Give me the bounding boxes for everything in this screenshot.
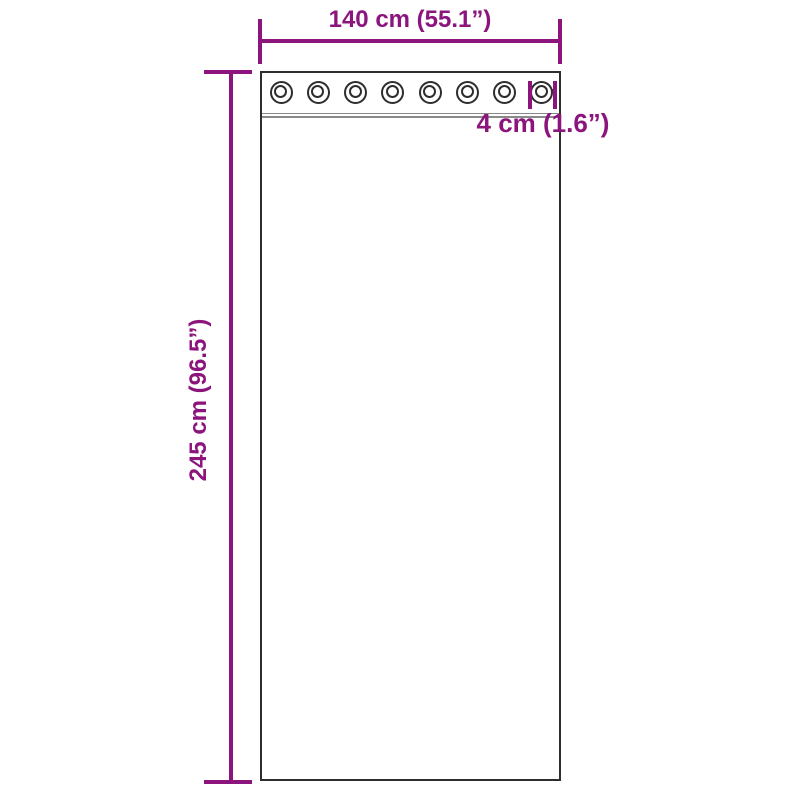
height-dimension-line bbox=[229, 72, 233, 782]
grommet bbox=[344, 81, 367, 104]
grommet-inner-ring bbox=[274, 85, 287, 98]
grommet-inner-ring bbox=[423, 85, 436, 98]
width-dimension-cap-left bbox=[258, 19, 262, 64]
grommet bbox=[530, 81, 553, 104]
grommet-inner-ring bbox=[386, 85, 399, 98]
grommet-inner-ring bbox=[311, 85, 324, 98]
grommet bbox=[270, 81, 293, 104]
grommet bbox=[493, 81, 516, 104]
width-dimension-cap-right bbox=[558, 19, 562, 64]
dimension-diagram: 140 cm (55.1”) 245 cm (96.5”) 4 cm (1.6”… bbox=[0, 0, 800, 800]
curtain-panel bbox=[260, 71, 561, 781]
grommet-dimension-tick-left bbox=[528, 81, 532, 109]
grommet bbox=[419, 81, 442, 104]
grommet-inner-ring bbox=[535, 85, 548, 98]
grommet-dimension-label: 4 cm (1.6”) bbox=[462, 108, 624, 139]
grommet-inner-ring bbox=[461, 85, 474, 98]
width-dimension-line bbox=[260, 39, 560, 43]
height-dimension-cap-bottom bbox=[204, 780, 252, 784]
grommet bbox=[307, 81, 330, 104]
height-dimension-cap-top bbox=[204, 70, 252, 74]
height-dimension-label: 245 cm (96.5”) bbox=[185, 250, 211, 550]
grommet-inner-ring bbox=[498, 85, 511, 98]
grommet bbox=[381, 81, 404, 104]
grommet bbox=[456, 81, 479, 104]
width-dimension-label: 140 cm (55.1”) bbox=[260, 6, 560, 35]
grommet-inner-ring bbox=[349, 85, 362, 98]
grommet-dimension-tick-right bbox=[553, 81, 557, 109]
